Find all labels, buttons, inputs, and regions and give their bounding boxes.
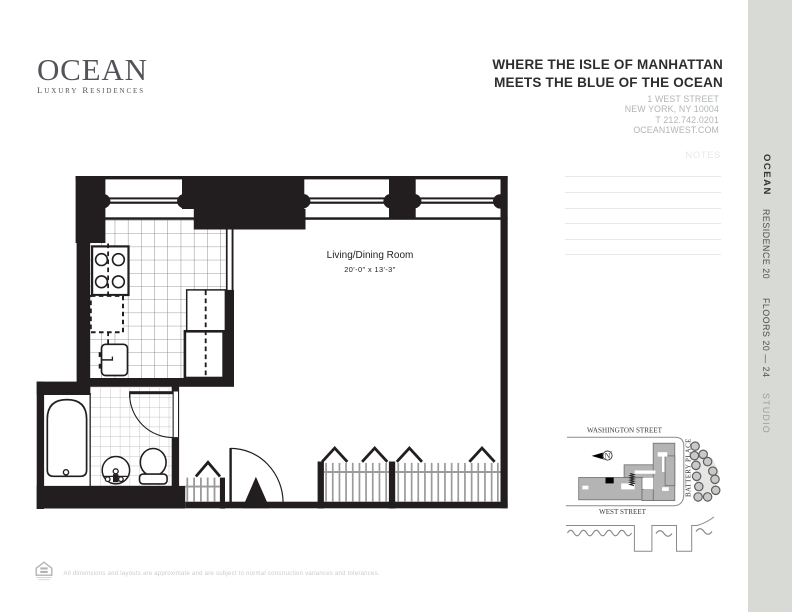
svg-text:WASHINGTON STREET: WASHINGTON STREET [587, 427, 663, 435]
svg-text:N: N [605, 452, 611, 461]
svg-text:WEST STREET: WEST STREET [599, 508, 647, 516]
